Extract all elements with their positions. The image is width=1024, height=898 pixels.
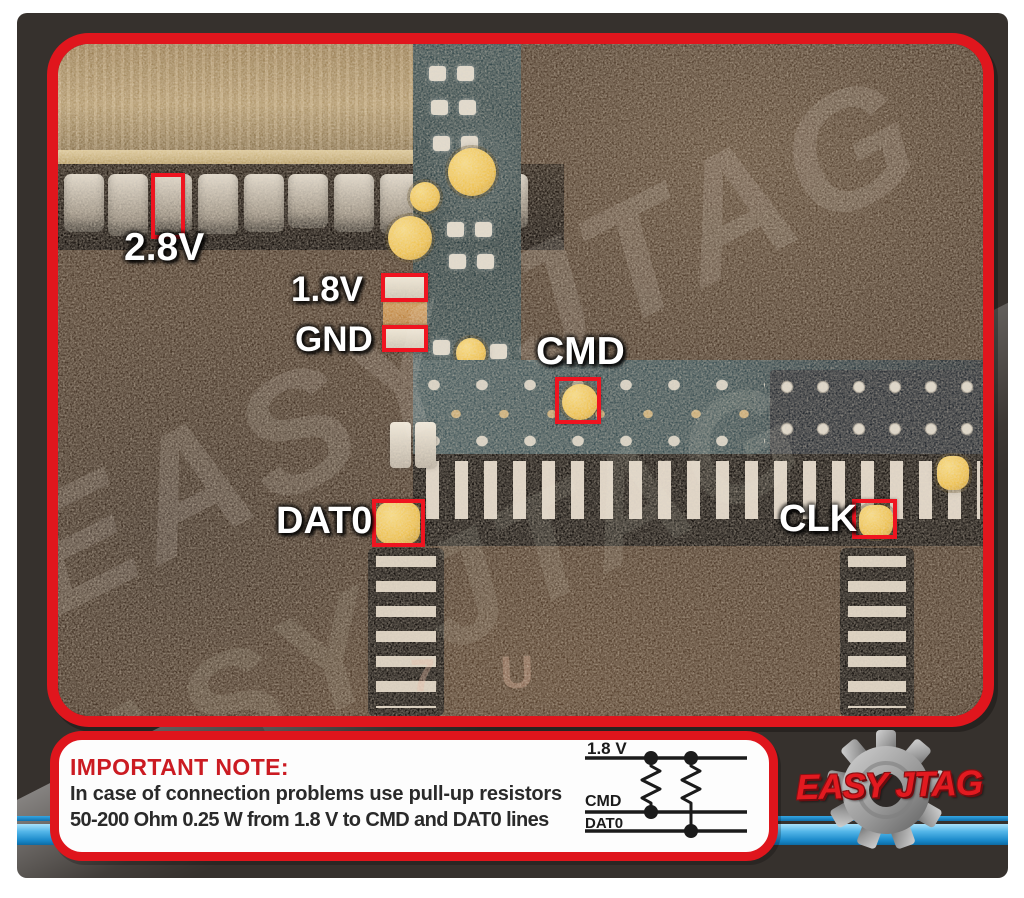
solder-pad: [447, 222, 464, 237]
pin-label-gnd: GND: [295, 320, 373, 360]
pin-label-cmd: CMD: [536, 330, 625, 374]
junction-dot: [684, 824, 698, 838]
capacitor: [415, 422, 436, 468]
solder-pad: [490, 344, 507, 359]
resistor-dat0: [682, 758, 700, 831]
solder-pad: [288, 174, 328, 228]
pad-ladder-rungs: [848, 556, 906, 708]
emi-shield: [58, 44, 434, 154]
gold-via: [410, 182, 440, 212]
solder-pad: [459, 100, 476, 115]
gold-via: [937, 456, 969, 490]
solder-pad: [449, 254, 466, 269]
note-line-2: 50-200 Ohm 0.25 W from 1.8 V to CMD and …: [70, 809, 549, 832]
gold-via: [448, 148, 496, 196]
solder-pad: [429, 66, 446, 81]
brand-logo-text: EASY JTAG: [793, 763, 986, 808]
schematic-rail-cmd-label: CMD: [585, 793, 621, 810]
highlight-box-clk: [852, 499, 897, 539]
silkscreen-text: 7 U: [409, 643, 560, 702]
highlight-box-gnd: [382, 325, 428, 352]
solder-pad: [477, 254, 494, 269]
resistor-cmd: [642, 758, 660, 812]
solder-pad: [334, 174, 374, 232]
highlight-box-cmd: [555, 377, 601, 424]
highlight-box-dat0: [372, 499, 425, 547]
solder-pad: [475, 222, 492, 237]
pcb-photo-frame: 7 U EASY JTAG EASY JTAG 2.8V 1.8V GND CM…: [47, 33, 994, 727]
solder-pad: [433, 136, 450, 151]
pin-label-clk: CLK: [779, 498, 857, 541]
pin-label-2v8: 2.8V: [124, 226, 204, 270]
pad-ladder: [840, 548, 914, 716]
capacitor: [390, 422, 411, 468]
highlight-box-1v8: [381, 273, 428, 302]
bga-pads: [770, 370, 983, 462]
pullup-schematic: 1.8 V CMD DAT0: [581, 742, 753, 854]
gold-via: [388, 216, 432, 260]
important-note-box: IMPORTANT NOTE: In case of connection pr…: [50, 731, 778, 861]
junction-dot: [644, 805, 658, 819]
note-title: IMPORTANT NOTE:: [70, 754, 289, 781]
pin-label-1v8: 1.8V: [291, 270, 363, 310]
solder-pad: [64, 174, 104, 232]
solder-pad: [433, 340, 450, 355]
solder-pad: [198, 174, 238, 234]
note-line-1: In case of connection problems use pull-…: [70, 783, 562, 806]
schematic-rail-1v8-label: 1.8 V: [587, 742, 627, 758]
solder-pad: [244, 174, 284, 232]
pin-label-dat0: DAT0: [276, 500, 372, 543]
solder-pad: [457, 66, 474, 81]
solder-pad: [431, 100, 448, 115]
